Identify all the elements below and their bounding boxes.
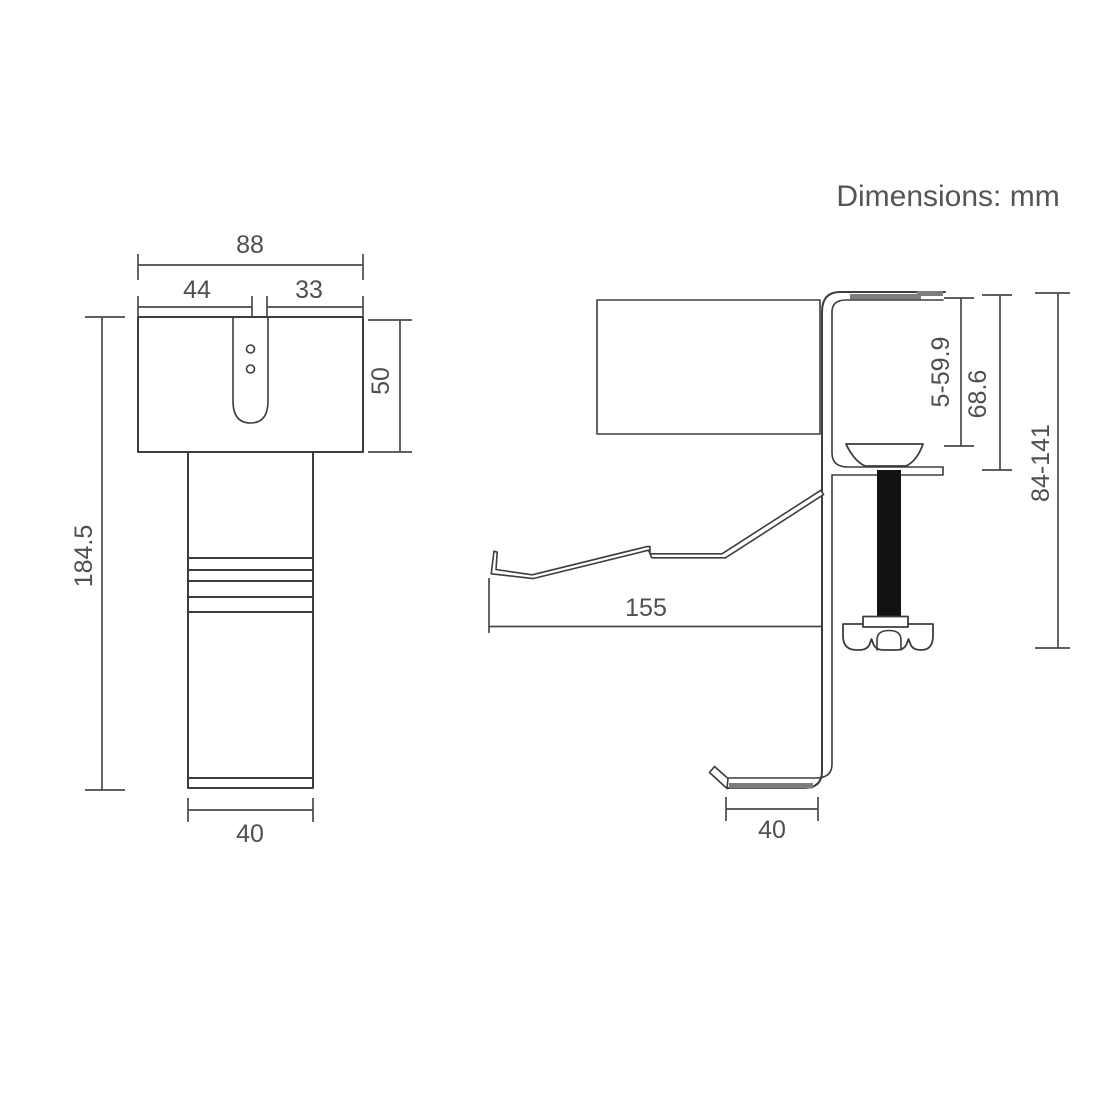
screw-hole-bottom (247, 365, 255, 373)
technical-drawing-page: Dimensions: mm 88 44 33 (0, 0, 1100, 1100)
front-slot (233, 317, 268, 423)
screw-hole-top (247, 345, 255, 353)
hook-pad (729, 783, 813, 789)
hook-lip (710, 767, 729, 789)
dim-88-label: 88 (236, 231, 264, 259)
dim-50-label: 50 (367, 367, 395, 395)
front-pole-outline (188, 452, 313, 788)
front-head-outline (138, 317, 363, 452)
dim-155-label: 155 (625, 594, 667, 622)
top-pad-left (850, 294, 921, 300)
dim-84-141: 84-141 (1027, 293, 1070, 648)
units-note: Dimensions: mm (836, 180, 1059, 213)
dim-68-6: 68.6 (964, 295, 1012, 470)
hanger-arm (491, 490, 823, 578)
dim-33-label: 33 (295, 276, 323, 304)
pole-ridges (188, 558, 313, 778)
dim-184-5-label: 184.5 (70, 525, 98, 588)
dim-40-front-label: 40 (236, 820, 264, 848)
dim-40-side-label: 40 (758, 816, 786, 844)
dim-33: 33 (267, 276, 363, 316)
dim-88: 88 (138, 231, 363, 280)
side-view: 155 40 5-59.9 68.6 84-141 (489, 291, 1070, 844)
top-pad-right (917, 291, 943, 296)
dim-40-front: 40 (188, 798, 313, 848)
knob-collar (863, 617, 908, 628)
clamp-pressure-pad (846, 444, 923, 466)
dim-50: 50 (367, 320, 412, 452)
desk-panel (597, 300, 820, 434)
dim-44-label: 44 (183, 276, 211, 304)
threaded-rod (877, 470, 901, 617)
dim-40-side: 40 (726, 797, 818, 844)
front-view: 88 44 33 50 184.5 40 (70, 231, 412, 848)
dimension-diagram: Dimensions: mm 88 44 33 (0, 0, 1100, 1100)
clamp-knob (843, 624, 933, 650)
dim-5-59-9-label: 5-59.9 (927, 337, 955, 408)
dim-68-6-label: 68.6 (964, 370, 992, 419)
dim-184-5: 184.5 (70, 317, 125, 790)
dim-84-141-label: 84-141 (1027, 424, 1055, 502)
dim-155: 155 (489, 578, 821, 633)
dim-44: 44 (138, 276, 252, 316)
